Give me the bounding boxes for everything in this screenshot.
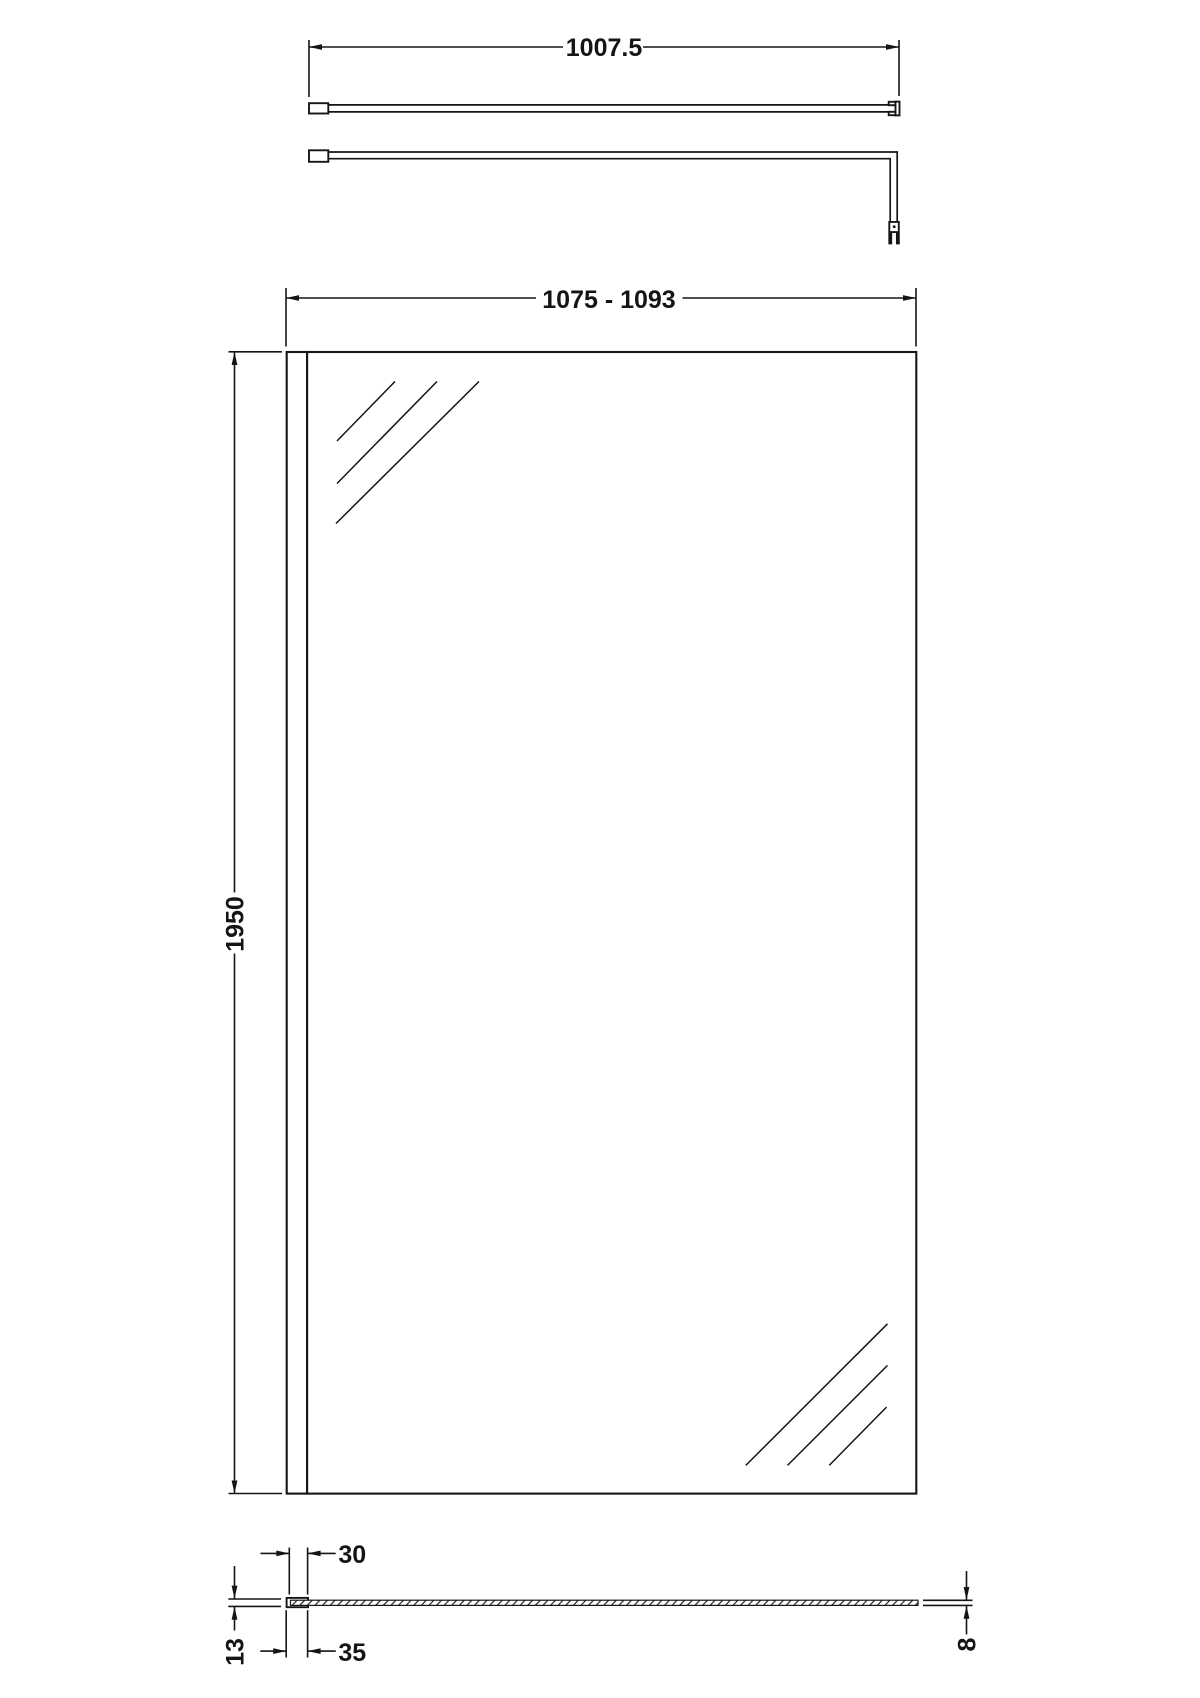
svg-text:1075 - 1093: 1075 - 1093 <box>542 286 675 314</box>
svg-text:8: 8 <box>954 1637 982 1651</box>
svg-text:1007.5: 1007.5 <box>566 34 643 62</box>
svg-text:35: 35 <box>338 1639 366 1667</box>
svg-text:13: 13 <box>222 1638 250 1666</box>
svg-text:30: 30 <box>338 1541 366 1569</box>
svg-text:1950: 1950 <box>222 896 250 952</box>
